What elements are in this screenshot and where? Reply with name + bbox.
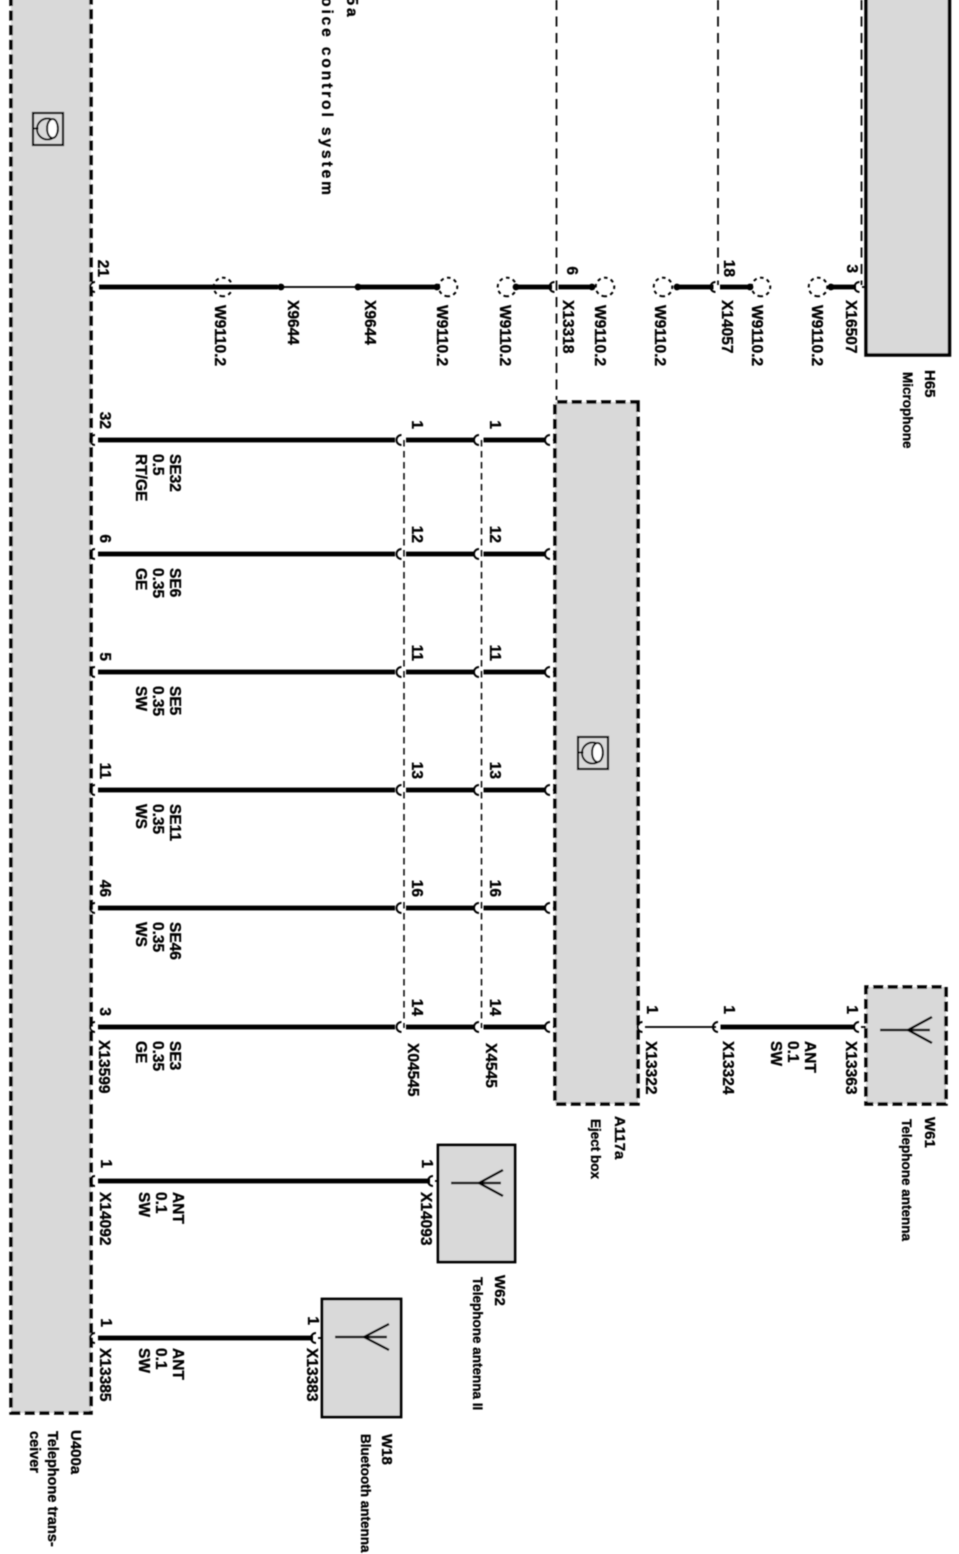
svg-text:16: 16 — [486, 880, 503, 898]
svg-text:ANT: ANT — [801, 1041, 818, 1073]
svg-text:ANT: ANT — [169, 1348, 186, 1380]
svg-text:16: 16 — [408, 880, 425, 898]
svg-text:W9110.2: W9110.2 — [591, 305, 608, 366]
svg-text:X13385: X13385 — [96, 1348, 113, 1402]
svg-text:0.35: 0.35 — [149, 568, 166, 599]
svg-text:Telephone antenna: Telephone antenna — [899, 1119, 914, 1242]
svg-text:32: 32 — [96, 412, 113, 429]
svg-text:3: 3 — [96, 1007, 113, 1016]
svg-text:WS: WS — [132, 804, 149, 829]
svg-text:W9110.2: W9110.2 — [808, 305, 825, 366]
svg-text:H65: H65 — [921, 370, 938, 398]
svg-text:SW: SW — [135, 1348, 152, 1373]
svg-text:W9110.2: W9110.2 — [496, 305, 513, 366]
svg-text:W62: W62 — [491, 1275, 508, 1306]
svg-text:18: 18 — [720, 260, 737, 278]
svg-text:SE3: SE3 — [166, 1041, 183, 1071]
svg-text:6: 6 — [96, 534, 113, 543]
svg-text:Eject box: Eject box — [588, 1119, 603, 1180]
svg-text:1: 1 — [643, 1005, 660, 1014]
svg-text:0.35: 0.35 — [149, 1041, 166, 1072]
svg-text:Telephone trans-: Telephone trans- — [44, 1431, 60, 1547]
svg-text:0.35: 0.35 — [149, 686, 166, 717]
svg-text:W18: W18 — [378, 1434, 395, 1465]
svg-text:SE11: SE11 — [166, 804, 183, 841]
svg-text:X9644: X9644 — [361, 300, 378, 345]
svg-text:A117a: A117a — [611, 1116, 628, 1160]
svg-text:SE32: SE32 — [166, 454, 183, 492]
svg-text:WS: WS — [132, 922, 149, 947]
svg-text:X13324: X13324 — [719, 1041, 736, 1095]
svg-text:Microphone: Microphone — [900, 372, 915, 449]
svg-text:SW: SW — [135, 1192, 152, 1217]
svg-text:RT/GE: RT/GE — [132, 454, 149, 501]
svg-text:0.1: 0.1 — [784, 1041, 801, 1063]
svg-text:X13318: X13318 — [559, 300, 576, 354]
svg-text:SW: SW — [767, 1041, 784, 1066]
svg-text:0.1: 0.1 — [152, 1348, 169, 1370]
svg-text:X14092: X14092 — [96, 1192, 113, 1245]
svg-text:0.35: 0.35 — [149, 922, 166, 953]
svg-text:0.5: 0.5 — [149, 454, 166, 476]
svg-text:1: 1 — [486, 420, 503, 429]
svg-text:Voice control system: Voice control system — [318, 0, 335, 198]
svg-text:Bluetooth antenna: Bluetooth antenna — [358, 1434, 373, 1553]
svg-text:W9110.2: W9110.2 — [748, 305, 765, 366]
svg-text:X4545: X4545 — [482, 1043, 499, 1088]
svg-text:1: 1 — [97, 1318, 114, 1327]
svg-text:21: 21 — [94, 260, 111, 278]
svg-text:1: 1 — [304, 1316, 321, 1325]
svg-text:X13363: X13363 — [842, 1041, 859, 1095]
svg-text:14: 14 — [408, 999, 425, 1017]
svg-text:46: 46 — [96, 880, 113, 898]
svg-text:U400a: U400a — [67, 1430, 84, 1475]
svg-text:11: 11 — [96, 763, 113, 780]
svg-text:1: 1 — [97, 1159, 114, 1168]
svg-text:65a: 65a — [343, 0, 360, 20]
svg-text:W9110.2: W9110.2 — [651, 305, 668, 366]
svg-text:ANT: ANT — [169, 1192, 186, 1224]
svg-text:X13599: X13599 — [95, 1040, 112, 1094]
svg-text:11: 11 — [408, 645, 425, 662]
svg-text:X9644: X9644 — [284, 300, 301, 345]
svg-text:X14093: X14093 — [417, 1192, 434, 1246]
svg-text:11: 11 — [486, 645, 503, 662]
svg-text:GE: GE — [132, 568, 149, 590]
svg-text:X14057: X14057 — [718, 300, 735, 353]
svg-text:Telephone antenna II: Telephone antenna II — [470, 1277, 485, 1410]
svg-text:SE6: SE6 — [166, 568, 183, 598]
svg-text:W61: W61 — [921, 1117, 938, 1148]
svg-text:12: 12 — [486, 526, 503, 543]
svg-text:X04545: X04545 — [404, 1043, 421, 1097]
svg-text:W9110.2: W9110.2 — [433, 305, 450, 366]
svg-text:X13322: X13322 — [642, 1041, 659, 1094]
svg-text:1: 1 — [843, 1005, 860, 1014]
svg-text:SE5: SE5 — [166, 686, 183, 716]
svg-text:13: 13 — [408, 762, 425, 780]
svg-text:12: 12 — [408, 526, 425, 543]
svg-text:3: 3 — [843, 264, 860, 273]
svg-text:X16507: X16507 — [842, 300, 859, 353]
svg-text:1: 1 — [418, 1159, 435, 1168]
svg-text:SW: SW — [132, 686, 149, 711]
svg-text:0.1: 0.1 — [152, 1192, 169, 1214]
svg-text:14: 14 — [486, 999, 503, 1017]
svg-text:13: 13 — [486, 762, 503, 780]
svg-text:0.35: 0.35 — [149, 804, 166, 835]
svg-text:X13383: X13383 — [303, 1348, 320, 1402]
svg-text:1: 1 — [720, 1005, 737, 1014]
svg-text:GE: GE — [132, 1041, 149, 1063]
svg-text:1: 1 — [408, 420, 425, 429]
svg-text:5: 5 — [96, 652, 113, 661]
svg-text:SE46: SE46 — [166, 922, 183, 960]
svg-text:ceiver: ceiver — [26, 1431, 42, 1473]
svg-text:W9110.2: W9110.2 — [211, 305, 228, 366]
svg-text:6: 6 — [563, 266, 580, 275]
